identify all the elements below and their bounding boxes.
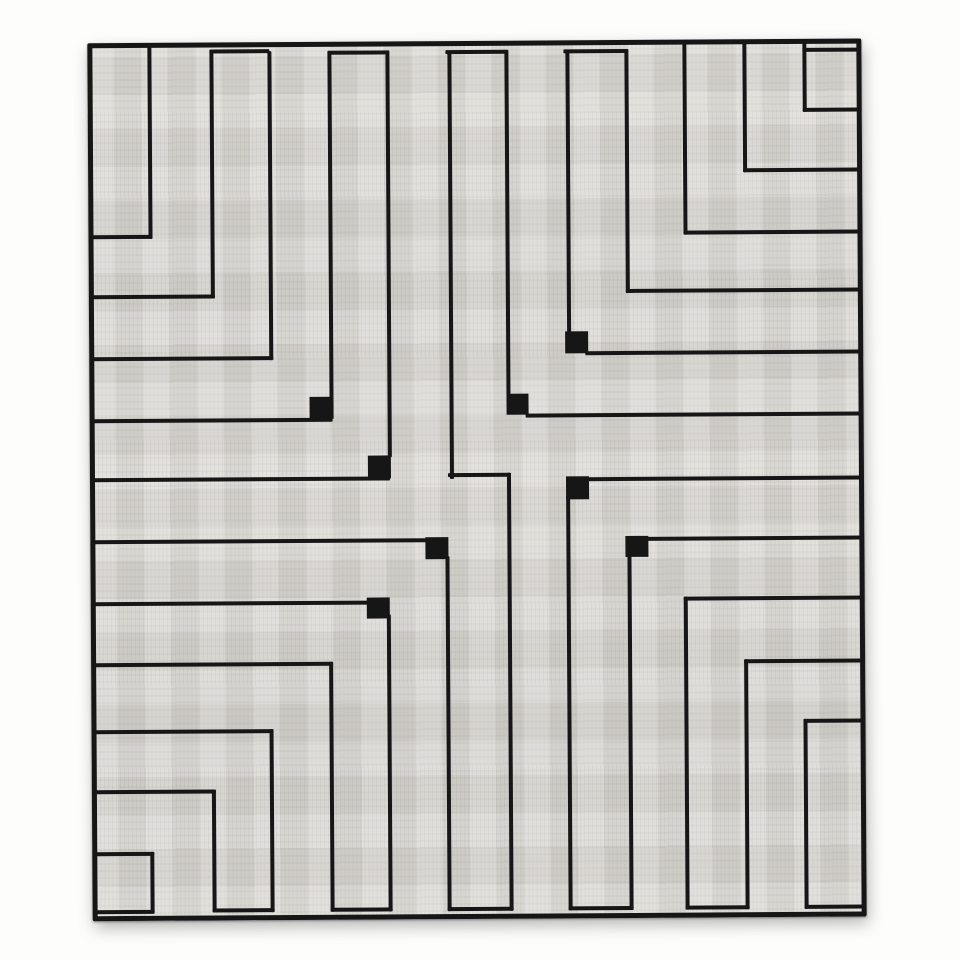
maze-line-vertical (212, 790, 217, 913)
maze-line-vertical (742, 42, 747, 172)
maze-line-horizontal (448, 473, 511, 477)
maze-line-horizontal (563, 49, 628, 53)
maze-line-horizontal (743, 168, 860, 173)
maze-line-horizontal (448, 907, 514, 911)
corner-square (368, 455, 391, 478)
maze-line-horizontal (803, 719, 863, 723)
corner-square (309, 397, 333, 419)
rug (87, 39, 866, 922)
maze-line-horizontal (213, 908, 275, 912)
rug-wrap (0, 0, 960, 960)
maze-line-horizontal (686, 905, 750, 909)
maze-line-horizontal (805, 905, 865, 909)
photo-background (0, 0, 960, 960)
maze-line-horizontal (327, 50, 389, 54)
corner-square (367, 597, 390, 618)
maze-line-horizontal (94, 852, 154, 856)
maze-line-horizontal (803, 108, 860, 112)
corner-square (506, 394, 528, 415)
maze-line-horizontal (95, 910, 155, 914)
corner-square (566, 476, 589, 499)
corner-square (625, 536, 648, 557)
maze-line-vertical (802, 42, 806, 112)
corner-square (425, 537, 448, 559)
maze-line-horizontal (94, 790, 216, 795)
maze-line-horizontal (744, 659, 863, 664)
maze-line-horizontal (91, 294, 215, 299)
maze-line-vertical (150, 852, 154, 913)
maze-line-horizontal (569, 906, 634, 910)
maze-line-horizontal (802, 48, 859, 52)
corner-square (565, 331, 588, 353)
maze-line-horizontal (90, 235, 152, 239)
maze-line-horizontal (445, 50, 508, 54)
maze-line-horizontal (331, 907, 393, 911)
maze-line-horizontal (209, 49, 269, 53)
